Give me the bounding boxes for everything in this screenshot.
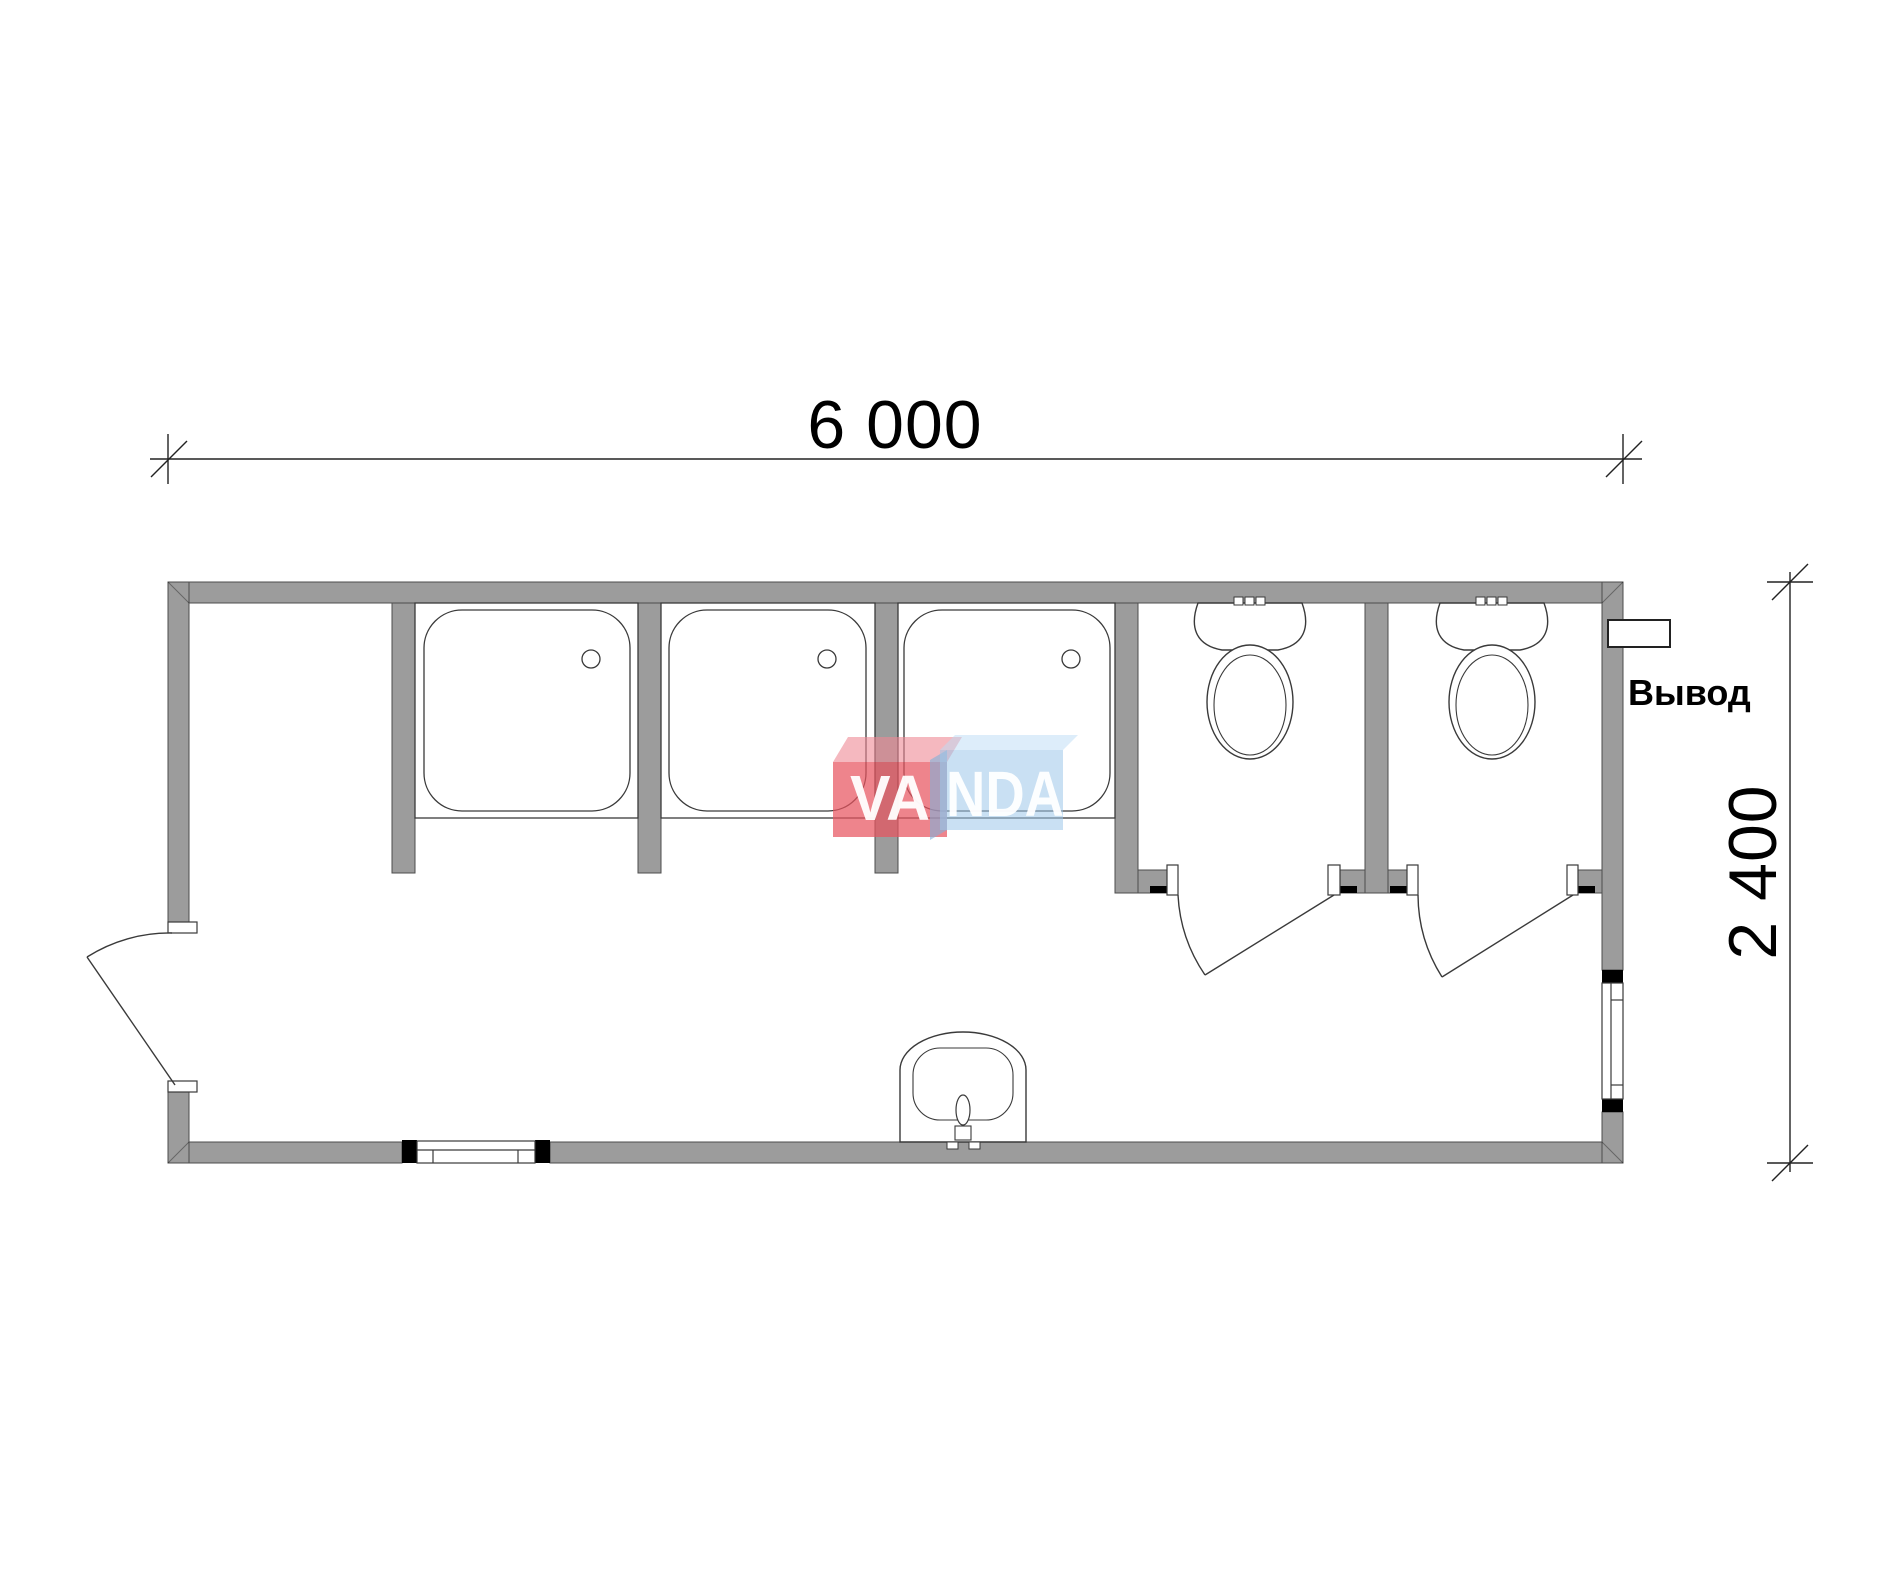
door-jambs — [168, 865, 1578, 1092]
bottom-wall-right — [550, 1142, 1623, 1163]
partition-5 — [1365, 603, 1388, 893]
stall1-door-jamb-left — [1167, 865, 1178, 895]
entry-door-jamb-bottom — [168, 1081, 197, 1092]
partition-1 — [392, 603, 415, 873]
bottom-window-cap-right — [535, 1140, 550, 1163]
bottom-window-cap-left — [402, 1140, 417, 1163]
mount-tab — [947, 1142, 958, 1149]
toilet-1 — [1194, 597, 1305, 759]
floor-plan-drawing: VA NDA — [0, 0, 1899, 1571]
left-wall-upper — [168, 582, 189, 922]
flush-button-icon — [1476, 597, 1485, 605]
vanda-watermark-logo: VA NDA — [833, 735, 1078, 840]
faucet-icon — [956, 1095, 970, 1125]
right-window-cap-top — [1602, 970, 1623, 983]
drain-icon — [1062, 650, 1080, 668]
bottom-window — [417, 1141, 535, 1163]
flush-button-icon — [1498, 597, 1507, 605]
stall1-door-jamb-right — [1328, 865, 1340, 895]
utility-outlet-stub — [1608, 620, 1670, 647]
stall2-door-jamb-left — [1407, 865, 1418, 895]
stall1-door — [1178, 895, 1334, 975]
partition-2 — [638, 603, 661, 873]
entry-door-swing-arc — [87, 933, 172, 957]
toilet-1-tank — [1194, 603, 1305, 650]
drain-icon — [582, 650, 600, 668]
toilet-2 — [1436, 597, 1547, 759]
stall1-door-leaf — [1205, 895, 1334, 975]
stall2-door-leaf — [1442, 895, 1573, 977]
faucet-base — [955, 1126, 971, 1140]
right-wall-lower — [1602, 1112, 1623, 1163]
stall2-door — [1418, 895, 1573, 977]
top-wall — [168, 582, 1623, 603]
right-window-cap-bottom — [1602, 1099, 1623, 1112]
width-dimension-label: 6 000 — [807, 386, 982, 464]
stall2-door-swing-arc — [1418, 895, 1442, 977]
right-window — [1602, 983, 1623, 1099]
entry-door — [87, 933, 175, 1085]
mount-tab — [969, 1142, 980, 1149]
height-dimension-label: 2 400 — [1714, 784, 1792, 959]
stall1-door-swing-arc — [1178, 895, 1205, 975]
toilet-2-bowl — [1449, 645, 1535, 759]
partition-4 — [1115, 603, 1138, 893]
flush-button-icon — [1256, 597, 1265, 605]
shower-tray-1 — [424, 610, 630, 811]
drain-icon — [818, 650, 836, 668]
entry-door-jamb-top — [168, 922, 197, 933]
logo-text-left: VA — [850, 762, 930, 834]
floor-plan-canvas: VA NDA 6 000 2 400 Вывод — [0, 0, 1899, 1571]
flush-button-icon — [1234, 597, 1243, 605]
flush-button-icon — [1487, 597, 1496, 605]
toilet-2-tank — [1436, 603, 1547, 650]
logo-text-right: NDA — [946, 758, 1064, 830]
logo-blue-top-face — [940, 735, 1078, 750]
bottom-wall-left — [168, 1142, 402, 1163]
toilet-1-bowl — [1207, 645, 1293, 759]
washbasin — [900, 1032, 1026, 1149]
entry-door-leaf — [87, 957, 175, 1085]
stall2-door-jamb-right — [1567, 865, 1578, 895]
flush-button-icon — [1245, 597, 1254, 605]
outlet-label: Вывод — [1628, 672, 1751, 714]
